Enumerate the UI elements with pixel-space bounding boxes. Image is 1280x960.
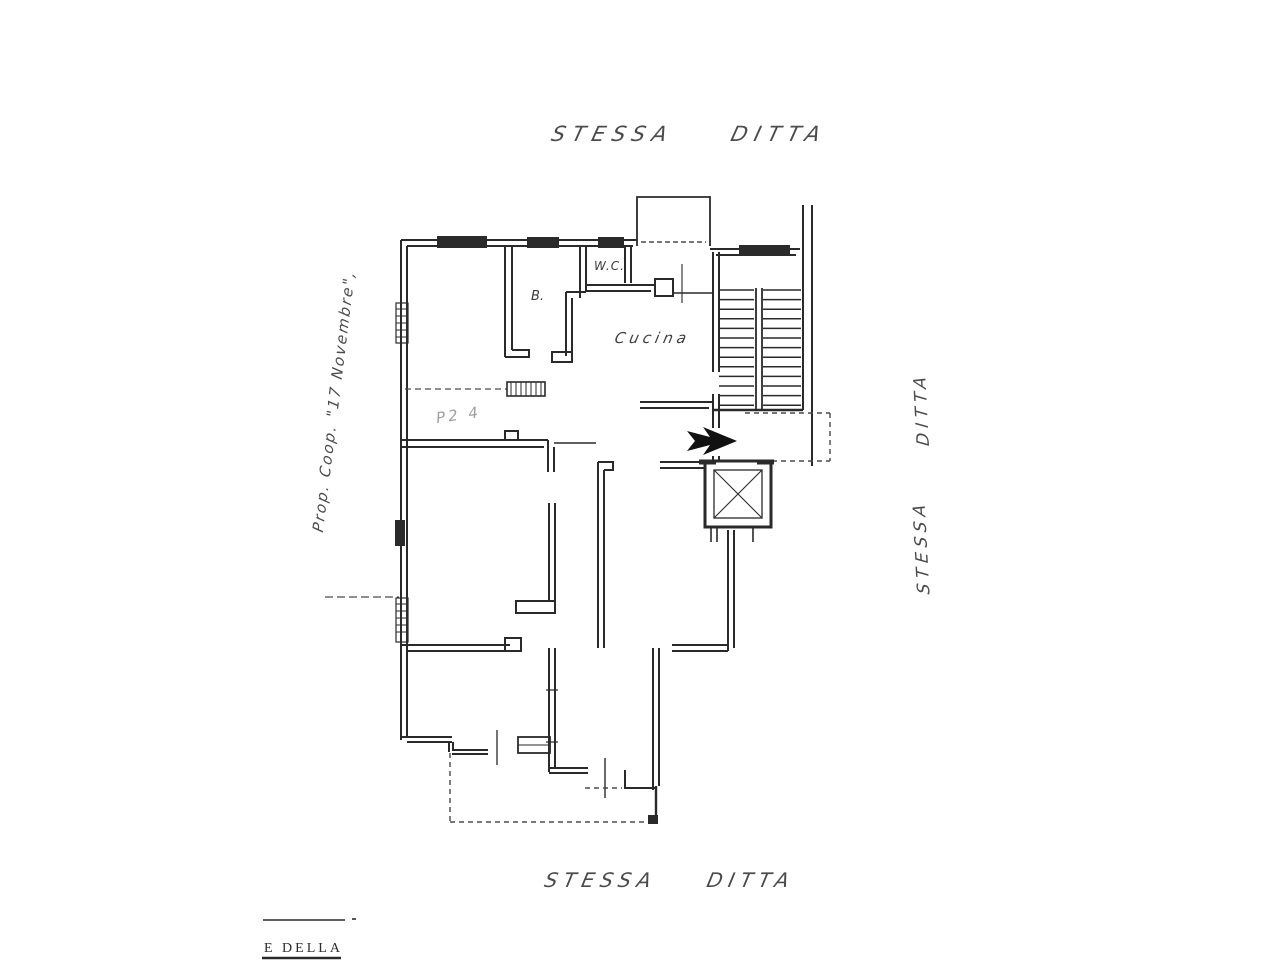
stair-landing bbox=[745, 413, 830, 461]
stamp-caption: E DELLA bbox=[264, 941, 343, 957]
right-walls bbox=[605, 530, 734, 820]
room-label-kitchen: Cucina bbox=[613, 329, 692, 347]
elevator-shaft bbox=[699, 461, 774, 542]
bottom-left-walls bbox=[401, 638, 550, 765]
staircase bbox=[713, 288, 803, 410]
right-neighbour-label-upper: DITTA bbox=[910, 370, 934, 448]
wardrobe-divider bbox=[405, 382, 545, 396]
scanned-floor-plan-page: STESSA DITTA STESSA DITTA DITTA STESSA P… bbox=[0, 0, 1280, 960]
room-label-wc: W.C. bbox=[594, 259, 625, 273]
bottom-room-walls bbox=[546, 648, 588, 773]
balcony-top bbox=[637, 197, 710, 246]
bottom-neighbour-label: STESSA DITTA bbox=[542, 868, 797, 892]
elevator-x-mark bbox=[714, 470, 762, 518]
entrance-arrow bbox=[687, 427, 737, 455]
balcony-corner-block bbox=[648, 815, 658, 824]
balcony-bottom bbox=[450, 753, 652, 822]
interior-walls bbox=[401, 246, 713, 648]
window-blocks bbox=[395, 236, 790, 546]
room-label-bath: B. bbox=[531, 289, 544, 304]
top-neighbour-label: STESSA DITTA bbox=[549, 122, 830, 146]
